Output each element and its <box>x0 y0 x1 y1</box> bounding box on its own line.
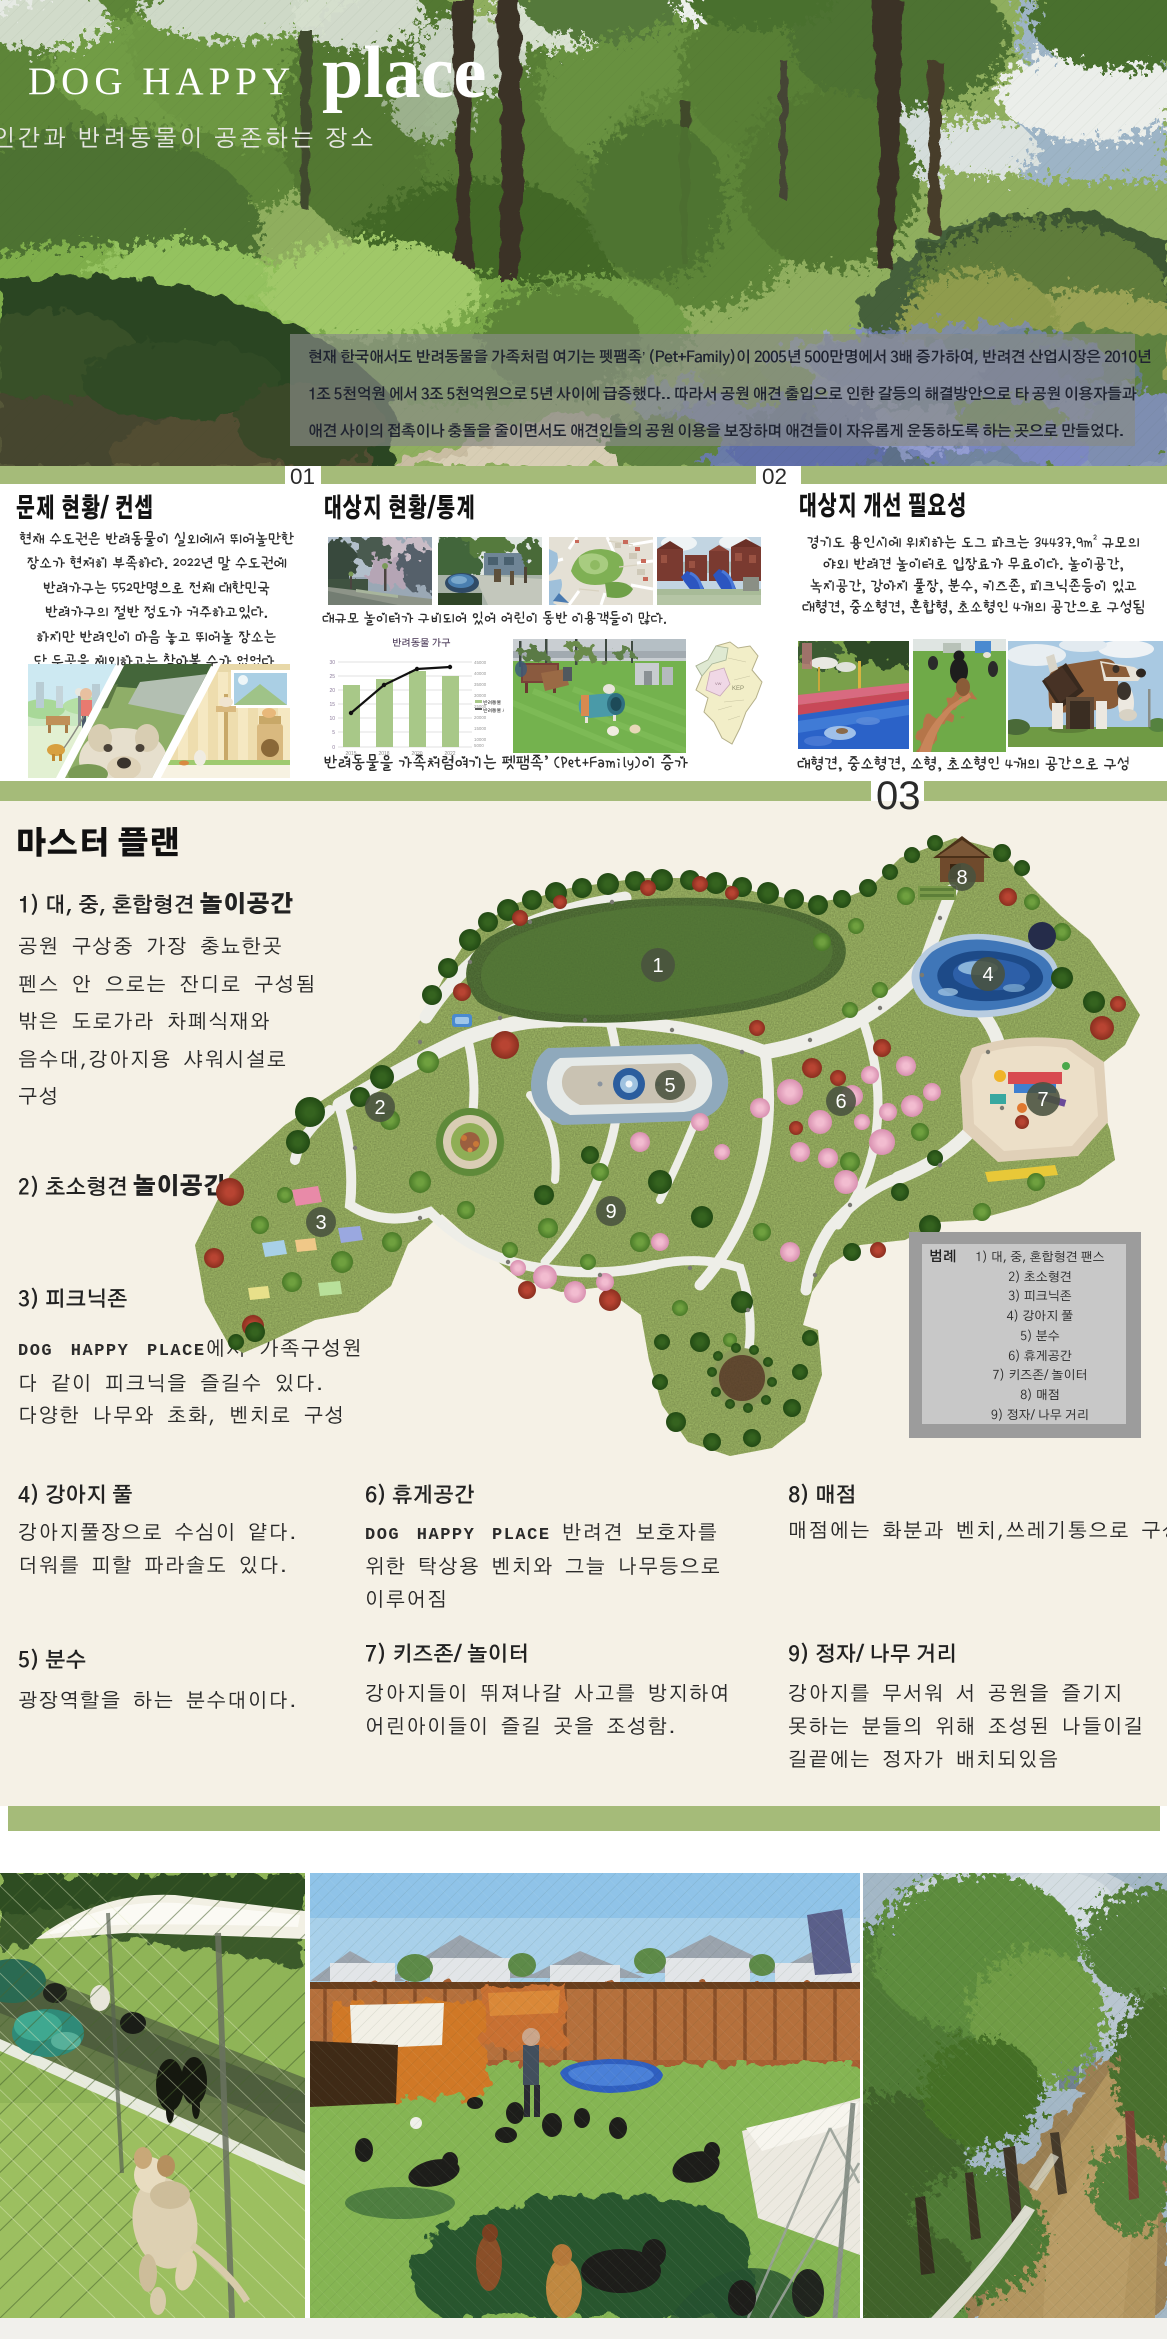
svg-text:5000: 5000 <box>474 743 484 748</box>
svg-text:5: 5 <box>664 1075 675 1097</box>
svg-text:5: 5 <box>332 730 335 736</box>
svg-text:20: 20 <box>329 688 335 694</box>
svg-text:15000: 15000 <box>474 726 487 731</box>
svg-text:4: 4 <box>982 964 993 986</box>
svg-text:35000: 35000 <box>474 682 487 687</box>
svg-text:7: 7 <box>1037 1089 1048 1111</box>
svg-text:반려동물 시장: 반려동물 시장 <box>483 708 504 713</box>
svg-text:15: 15 <box>329 702 335 708</box>
svg-text:40000: 40000 <box>474 671 487 676</box>
svg-text:10: 10 <box>329 716 335 722</box>
svg-text:30: 30 <box>329 660 335 666</box>
svg-text:25: 25 <box>329 674 335 680</box>
svg-text:반려동물 가구: 반려동물 가구 <box>392 638 450 648</box>
svg-text:45000: 45000 <box>474 660 487 665</box>
svg-text:10000: 10000 <box>474 737 487 742</box>
svg-text:3: 3 <box>315 1212 326 1234</box>
svg-text:0: 0 <box>332 745 335 751</box>
svg-text:9: 9 <box>605 1201 616 1223</box>
svg-text:1: 1 <box>652 955 663 977</box>
svg-text:반려동물: 반려동물 <box>483 700 502 705</box>
svg-text:20000: 20000 <box>474 715 487 720</box>
svg-text:8: 8 <box>956 867 967 889</box>
svg-text:6: 6 <box>835 1091 846 1113</box>
svg-text:30000: 30000 <box>474 693 487 698</box>
svg-text:2: 2 <box>374 1097 385 1119</box>
svg-text:KEP: KEP <box>732 686 744 692</box>
svg-text:VW: VW <box>715 681 722 686</box>
